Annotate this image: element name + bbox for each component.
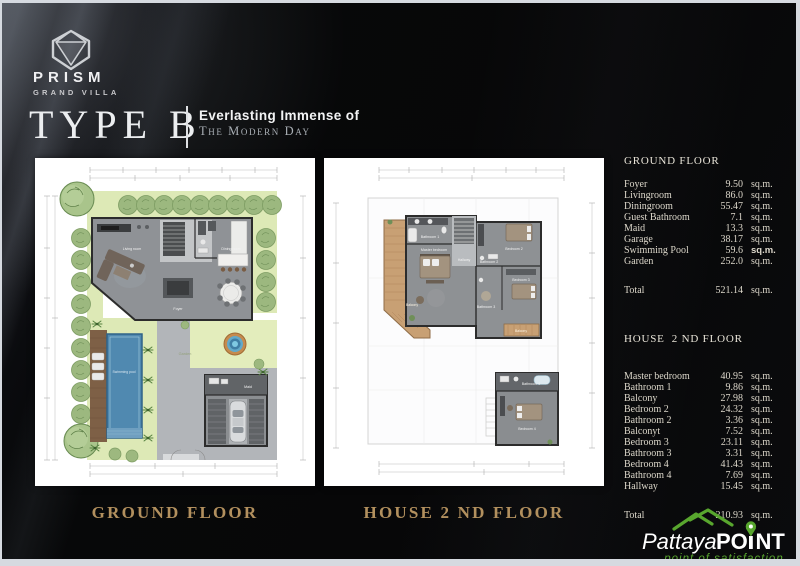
area-unit: sq.m.: [748, 212, 780, 223]
table-header: HOUSE 2 ND FLOOR: [624, 333, 780, 345]
label-foyer: Foyer: [173, 307, 183, 311]
room-name: Diningroom: [624, 201, 694, 212]
table-row: Maid 13.3 sq.m.: [624, 223, 780, 234]
caption-ground-floor: GROUND FLOOR: [35, 503, 315, 523]
garage-block: [205, 375, 267, 446]
room-area: 24.32: [699, 404, 743, 415]
label-bedroom3: Bedroom 3: [512, 278, 530, 282]
brand-name: PRISM: [33, 69, 143, 86]
second-floor-plan: Bathroom 1 Master bedroom Hallway Balcon…: [324, 158, 604, 486]
pattaya-point-logo: Pattaya PO NT point of satisfaction: [636, 507, 800, 565]
room-name: Bathroom 4: [624, 470, 694, 481]
table-row: Swimming Pool 59.6 sq.m.: [624, 245, 780, 256]
label-bathroom2: Bathroom 2: [480, 260, 499, 264]
room-area: 38.17: [699, 234, 743, 245]
room-name: Livingroom: [624, 190, 694, 201]
table-row: Bedroom 3 23.11 sq.m.: [624, 437, 780, 448]
second-floor-plan-panel: Bathroom 1 Master bedroom Hallway Balcon…: [324, 158, 604, 486]
area-unit: sq.m.: [748, 393, 780, 404]
table-row: Bathroom 2 3.36 sq.m.: [624, 415, 780, 426]
entrance-paving: [163, 454, 199, 460]
room-area: 55.47: [699, 201, 743, 212]
area-unit: sq.m.: [748, 201, 780, 212]
brand-subtitle: GRAND VILLA: [33, 88, 153, 97]
tagline-line2: The Modern Day: [199, 124, 311, 139]
car: [230, 401, 246, 442]
second-floor-area-table: HOUSE 2 ND FLOOR Master bedroom 40.95 sq…: [624, 333, 780, 521]
logo-tagline: point of satisfaction: [663, 553, 783, 565]
area-unit: sq.m.: [748, 470, 780, 481]
table-rows: Foyer 9.50 sq.m. Livingroom 86.0 sq.m. D…: [624, 179, 780, 267]
label-master-bedroom: Master bedroom: [421, 248, 447, 252]
room-name: Bathroom 1: [624, 382, 694, 393]
label-bedroom2: Bedroom 2: [505, 247, 523, 251]
area-unit: sq.m.: [748, 481, 780, 492]
table-row: Master bedroom 40.95 sq.m.: [624, 371, 780, 382]
label-dining-room: Dining room: [221, 247, 240, 251]
room-area: 3.36: [699, 415, 743, 426]
room-area: 13.3: [699, 223, 743, 234]
total-unit: sq.m.: [748, 285, 780, 296]
area-unit: sq.m.: [748, 437, 780, 448]
room-name: Bedroom 2: [624, 404, 694, 415]
room-area: 59.6: [699, 245, 743, 256]
room-name: Garden: [624, 256, 694, 267]
area-unit: sq.m.: [748, 234, 780, 245]
room-area: 9.50: [699, 179, 743, 190]
label-bedroom4: Bedroom 4: [518, 427, 536, 431]
brochure-page: PRISM GRAND VILLA TYPE B Everlasting Imm…: [0, 0, 800, 566]
label-garden: Garden: [179, 352, 192, 356]
ground-floor-plan-panel: Living room Dining room Foyer Garden Swi…: [35, 158, 315, 486]
label-maid: Maid: [244, 385, 252, 389]
total-label: Total: [624, 285, 694, 296]
room-name: Balcony: [624, 393, 694, 404]
table-row: Foyer 9.50 sq.m.: [624, 179, 780, 190]
table-row: Diningroom 55.47 sq.m.: [624, 201, 780, 212]
area-unit: sq.m.: [748, 415, 780, 426]
room-name: Balconyt: [624, 426, 694, 437]
area-unit: sq.m.: [748, 459, 780, 470]
label-bathroom1: Bathroom 1: [421, 235, 440, 239]
room-area: 9.86: [699, 382, 743, 393]
room-area: 15.45: [699, 481, 743, 492]
table-row: Garden 252.0 sq.m.: [624, 256, 780, 267]
room-area: 40.95: [699, 371, 743, 382]
swimming-pool-area: [90, 330, 142, 442]
table-header: GROUND FLOOR: [624, 155, 780, 167]
room-area: 41.43: [699, 459, 743, 470]
room-area: 23.11: [699, 437, 743, 448]
room-area: 7.52: [699, 426, 743, 437]
area-unit: sq.m.: [748, 382, 780, 393]
room-name: Garage: [624, 234, 694, 245]
prism-gem-icon: [49, 29, 93, 71]
villa-building: [92, 218, 252, 320]
room-area: 27.98: [699, 393, 743, 404]
room-area: 252.0: [699, 256, 743, 267]
label-balcony-bottom: Balcony: [515, 329, 527, 333]
label-bathroom4: Bathroom 4: [522, 382, 541, 386]
table-row: Bathroom 4 7.69 sq.m.: [624, 470, 780, 481]
room-name: Bedroom 3: [624, 437, 694, 448]
logo-text-nt: NT: [756, 529, 786, 554]
room-name: Hallway: [624, 481, 694, 492]
table-total-row: Total 521.14 sq.m.: [624, 285, 780, 296]
label-swimming-pool: Swimming pool: [113, 370, 136, 374]
room-name: Foyer: [624, 179, 694, 190]
area-unit: sq.m.: [748, 404, 780, 415]
ground-floor-plan: Living room Dining room Foyer Garden Swi…: [35, 158, 315, 486]
table-row: Bedroom 2 24.32 sq.m.: [624, 404, 780, 415]
caption-second-floor: HOUSE 2 ND FLOOR: [324, 503, 604, 523]
room-area: 7.1: [699, 212, 743, 223]
jacuzzi: [224, 333, 246, 355]
label-balcony-left: Balcony: [406, 303, 418, 307]
area-unit: sq.m.: [748, 448, 780, 459]
area-unit: sq.m.: [748, 179, 780, 190]
area-unit: sq.m.: [748, 371, 780, 382]
table-row: Balcony 27.98 sq.m.: [624, 393, 780, 404]
room-name: Bedroom 4: [624, 459, 694, 470]
room-area: 3.31: [699, 448, 743, 459]
room-name: Swimming Pool: [624, 245, 694, 256]
table-row: Guest Bathroom 7.1 sq.m.: [624, 212, 780, 223]
table-row: Balconyt 7.52 sq.m.: [624, 426, 780, 437]
table-row: Bathroom 3 3.31 sq.m.: [624, 448, 780, 459]
ground-floor-area-table: GROUND FLOOR Foyer 9.50 sq.m. Livingroom…: [624, 155, 780, 296]
room-name: Master bedroom: [624, 371, 694, 382]
logo-text-po: PO: [716, 529, 748, 554]
table-row: Garage 38.17 sq.m.: [624, 234, 780, 245]
room-name: Bathroom 3: [624, 448, 694, 459]
label-living-room: Living room: [123, 247, 142, 251]
area-unit: sq.m.: [748, 245, 780, 256]
page-title: TYPE B: [29, 101, 202, 148]
tagline-line1: Everlasting Immense of: [199, 108, 359, 123]
area-unit: sq.m.: [748, 223, 780, 234]
label-bathroom3: Bathroom 3: [477, 305, 496, 309]
room-name: Maid: [624, 223, 694, 234]
logo-text-pattaya: Pattaya: [642, 529, 717, 554]
room-name: Bathroom 2: [624, 415, 694, 426]
area-unit: sq.m.: [748, 256, 780, 267]
label-hallway: Hallway: [458, 258, 471, 262]
area-unit: sq.m.: [748, 426, 780, 437]
table-rows: Master bedroom 40.95 sq.m. Bathroom 1 9.…: [624, 371, 780, 492]
roof-icon: [674, 510, 732, 529]
table-row: Bathroom 1 9.86 sq.m.: [624, 382, 780, 393]
table-row: Hallway 15.45 sq.m.: [624, 481, 780, 492]
title-divider: [186, 106, 188, 148]
table-row: Bedroom 4 41.43 sq.m.: [624, 459, 780, 470]
table-row: Livingroom 86.0 sq.m.: [624, 190, 780, 201]
area-unit: sq.m.: [748, 190, 780, 201]
room-area: 7.69: [699, 470, 743, 481]
room-name: Guest Bathroom: [624, 212, 694, 223]
room-area: 86.0: [699, 190, 743, 201]
total-value: 521.14: [699, 285, 743, 296]
